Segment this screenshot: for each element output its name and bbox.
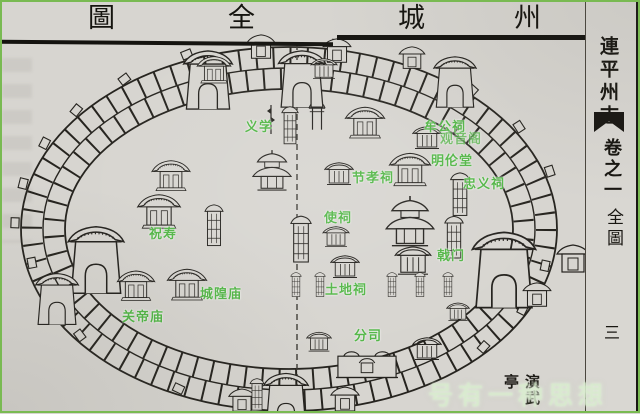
label-earth-god-shrine: 土地祠 [325, 284, 367, 297]
zhushou-building-icon [138, 195, 181, 228]
label-charity-school: 义学 [245, 121, 273, 134]
wall-tower-icon [331, 387, 359, 411]
main-hall-building-icon [386, 196, 433, 246]
label-city-god-temple: 城隍庙 [200, 288, 242, 301]
earth-god-shrine-building-icon [331, 256, 360, 278]
wall-tower-icon [399, 47, 425, 69]
watermark-text: 号有一种思想 [428, 376, 608, 412]
label-shi-shrine: 使祠 [324, 212, 352, 225]
building-icon [415, 272, 426, 296]
map-title-char: 全 [228, 5, 255, 32]
label-zhongyi-shrine: 忠义祠 [463, 178, 505, 191]
building-icon [387, 272, 398, 296]
map-title-char: 圖 [88, 5, 115, 32]
page-number: 三 [602, 324, 618, 340]
shi-shrine-building-icon [323, 227, 349, 247]
building-icon [443, 272, 454, 296]
book-gutter-column: 連平州志 卷之一 全圖 三 [585, 0, 640, 413]
label-fensi: 分司 [354, 330, 382, 343]
label-guanyin-pavilion: 观音阁 [440, 133, 482, 146]
city-map-woodcut [0, 0, 640, 413]
volume-label: 卷之一 [602, 138, 620, 201]
guandi-temple-building-icon [117, 271, 154, 300]
ji-gate-building-icon [395, 247, 431, 274]
fensi-compound-icon [336, 352, 398, 378]
section-label: 全圖 [604, 208, 621, 250]
building-icon [315, 272, 326, 296]
building-icon [291, 272, 302, 296]
building-icon [253, 150, 291, 190]
building-icon [307, 332, 332, 351]
label-minglun-hall: 明伦堂 [431, 155, 473, 168]
building-icon [250, 379, 264, 410]
building-icon [413, 338, 442, 360]
map-title-char: 州 [514, 5, 541, 32]
building-icon [523, 283, 551, 306]
building-icon [205, 205, 223, 246]
scanned-gazetteer-page: { "header": { "title_chars": ["圖", "全", … [0, 0, 640, 413]
charity-school-building-icon [282, 107, 298, 144]
label-jiexiao-shrine: 节孝祠 [352, 172, 394, 185]
south-gate-tower-icon [264, 373, 309, 413]
label-zhushou: 祝寿 [149, 228, 177, 241]
jiexiao-shrine-building-icon [325, 163, 354, 185]
memorial-arch-icon [309, 105, 325, 130]
east-gate-tower-icon [472, 232, 535, 307]
minglun-hall-building-icon [389, 153, 430, 185]
building-icon [291, 216, 311, 262]
mou-gong-shrine-building-icon [345, 107, 384, 138]
wall-tower-icon [229, 389, 255, 411]
map-title-char: 城 [398, 5, 425, 32]
northeast-gate-tower-icon [434, 57, 476, 107]
wall-tower-icon [247, 35, 275, 58]
label-guandi-temple: 关帝庙 [122, 311, 164, 324]
building-icon [447, 303, 470, 320]
label-ji-gate: 戟门 [437, 250, 465, 263]
building-icon [152, 161, 190, 191]
